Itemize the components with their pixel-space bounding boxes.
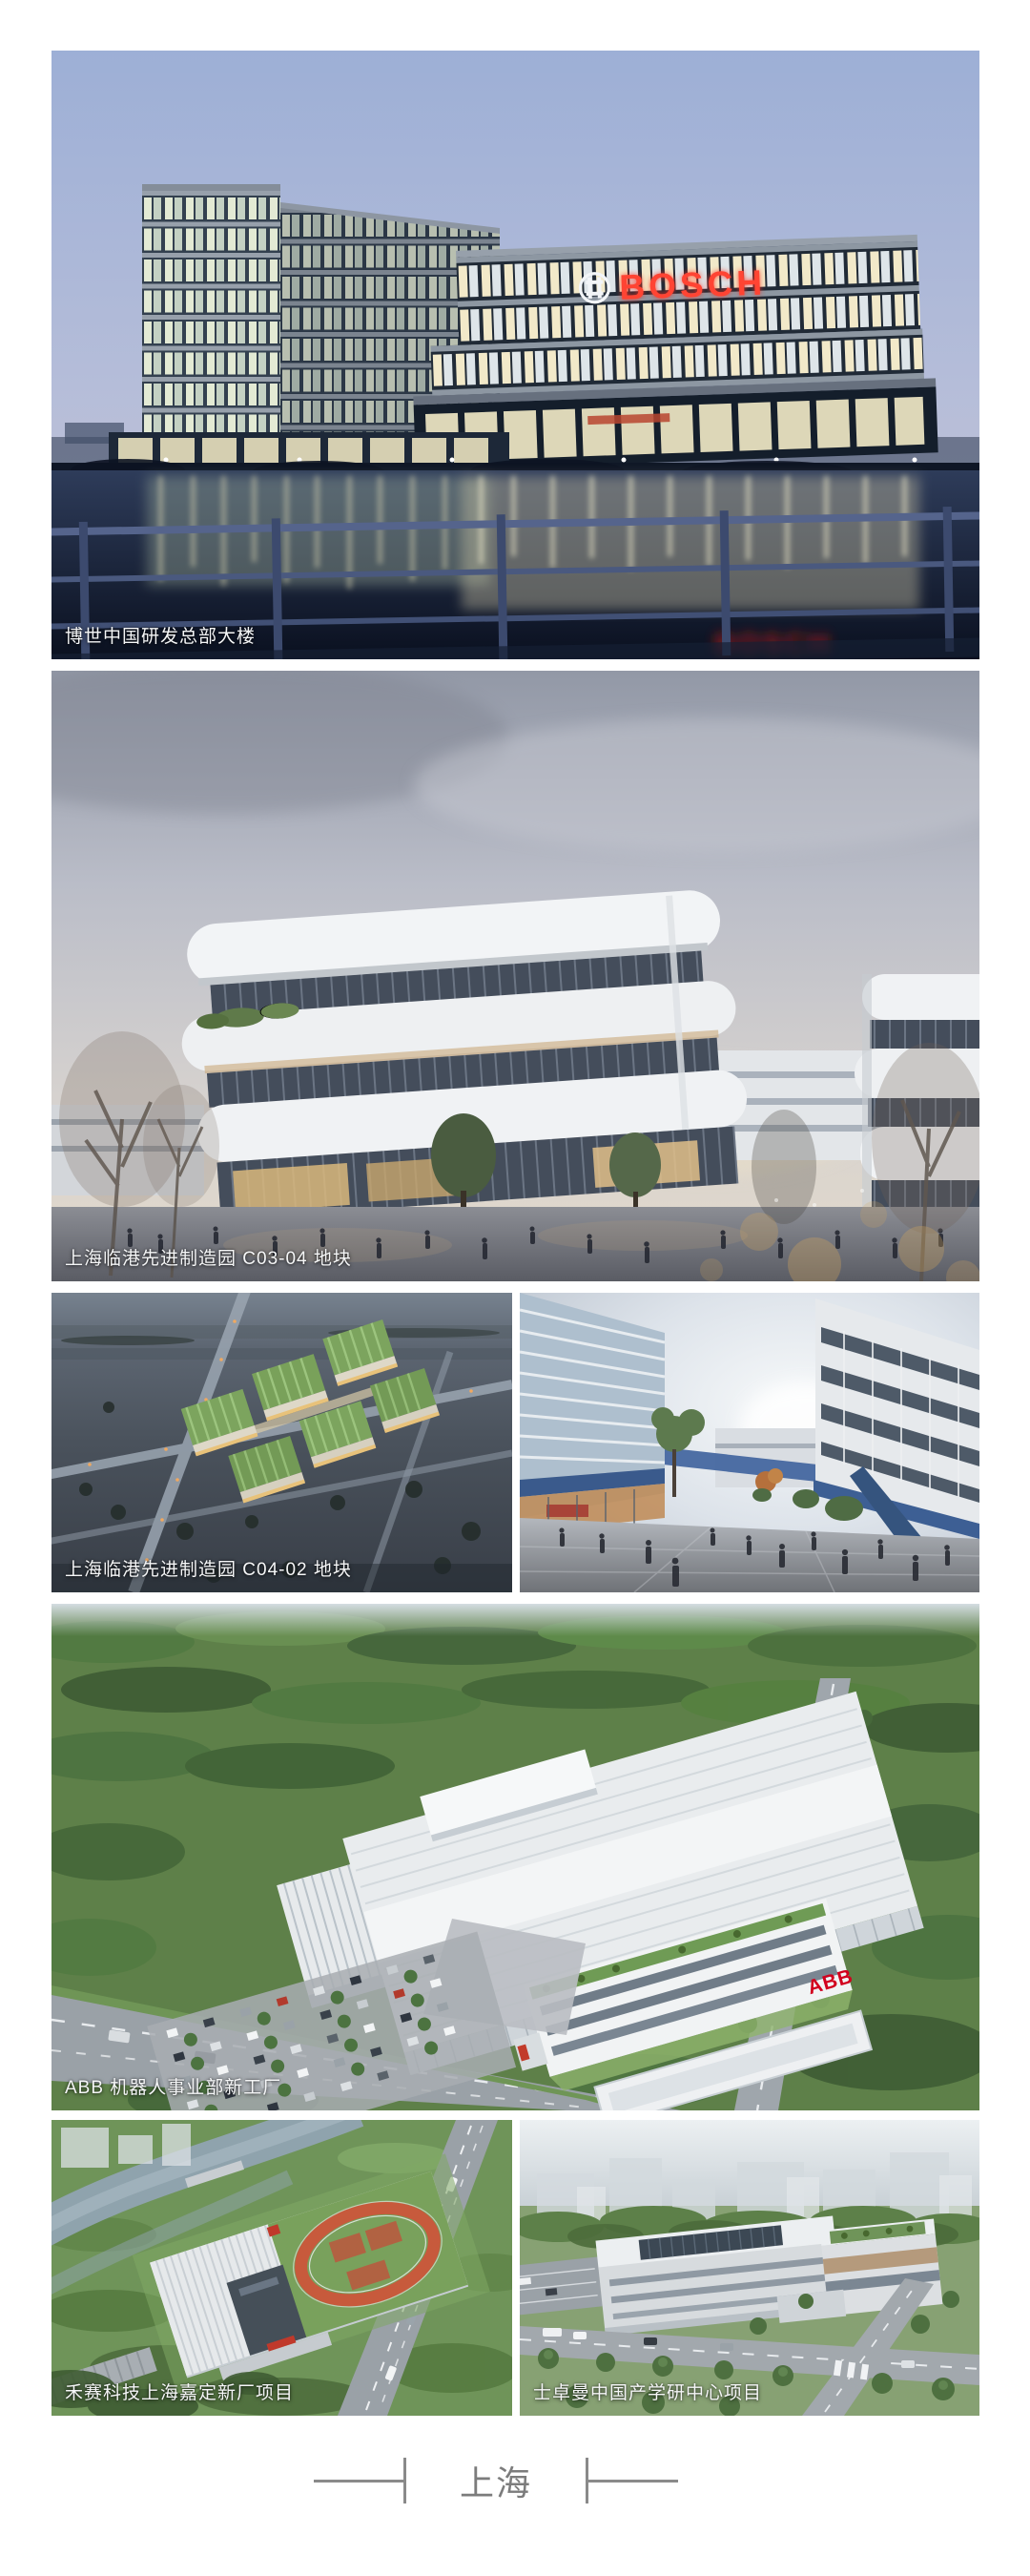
photo-lingang-c03-04[interactable]: 上海临港先进制造园 C03-04 地块 xyxy=(51,671,979,1281)
divider-left-tick xyxy=(403,2458,406,2503)
photo-straumann-center[interactable]: 士卓曼中国产学研中心项目 xyxy=(520,2120,979,2416)
footer-location: 上海 xyxy=(0,2456,1011,2505)
photo-caption: 博世中国研发总部大楼 xyxy=(65,622,256,648)
photo-caption: 士卓曼中国产学研中心项目 xyxy=(533,2379,762,2404)
photo-caption: 上海临港先进制造园 C03-04 地块 xyxy=(65,1244,352,1270)
photo-lingang-c04-02[interactable]: 上海临港先进制造园 C04-02 地块 xyxy=(51,1293,512,1592)
straumann-center-illustration xyxy=(520,2120,979,2416)
photo-caption: ABB 机器人事业部新工厂 xyxy=(65,2073,281,2099)
divider-right-line xyxy=(588,2480,678,2483)
hesai-plant-illustration xyxy=(51,2120,512,2416)
photo-hesai-plant[interactable]: 禾赛科技上海嘉定新厂项目 xyxy=(51,2120,512,2416)
photo-caption: 上海临港先进制造园 C04-02 地块 xyxy=(65,1555,352,1581)
lingang-c04-02-illustration xyxy=(51,1293,512,1592)
lingang-c03-04-illustration xyxy=(51,671,979,1281)
lingang-courtyard-illustration xyxy=(520,1293,979,1592)
photo-caption: 禾赛科技上海嘉定新厂项目 xyxy=(65,2379,294,2404)
divider-left-line xyxy=(314,2480,403,2483)
photo-abb-factory[interactable]: ABB xyxy=(51,1604,979,2110)
article-page: BOSCH BOSCH xyxy=(0,0,1030,2576)
photo-bosch-hq[interactable]: BOSCH BOSCH xyxy=(51,51,979,659)
abb-factory-illustration: ABB xyxy=(51,1604,979,2110)
photo-lingang-courtyard[interactable] xyxy=(520,1293,979,1592)
location-label: 上海 xyxy=(460,2456,532,2505)
bosch-hq-illustration: BOSCH BOSCH xyxy=(51,51,979,659)
bosch-sign-text: BOSCH xyxy=(619,263,767,307)
